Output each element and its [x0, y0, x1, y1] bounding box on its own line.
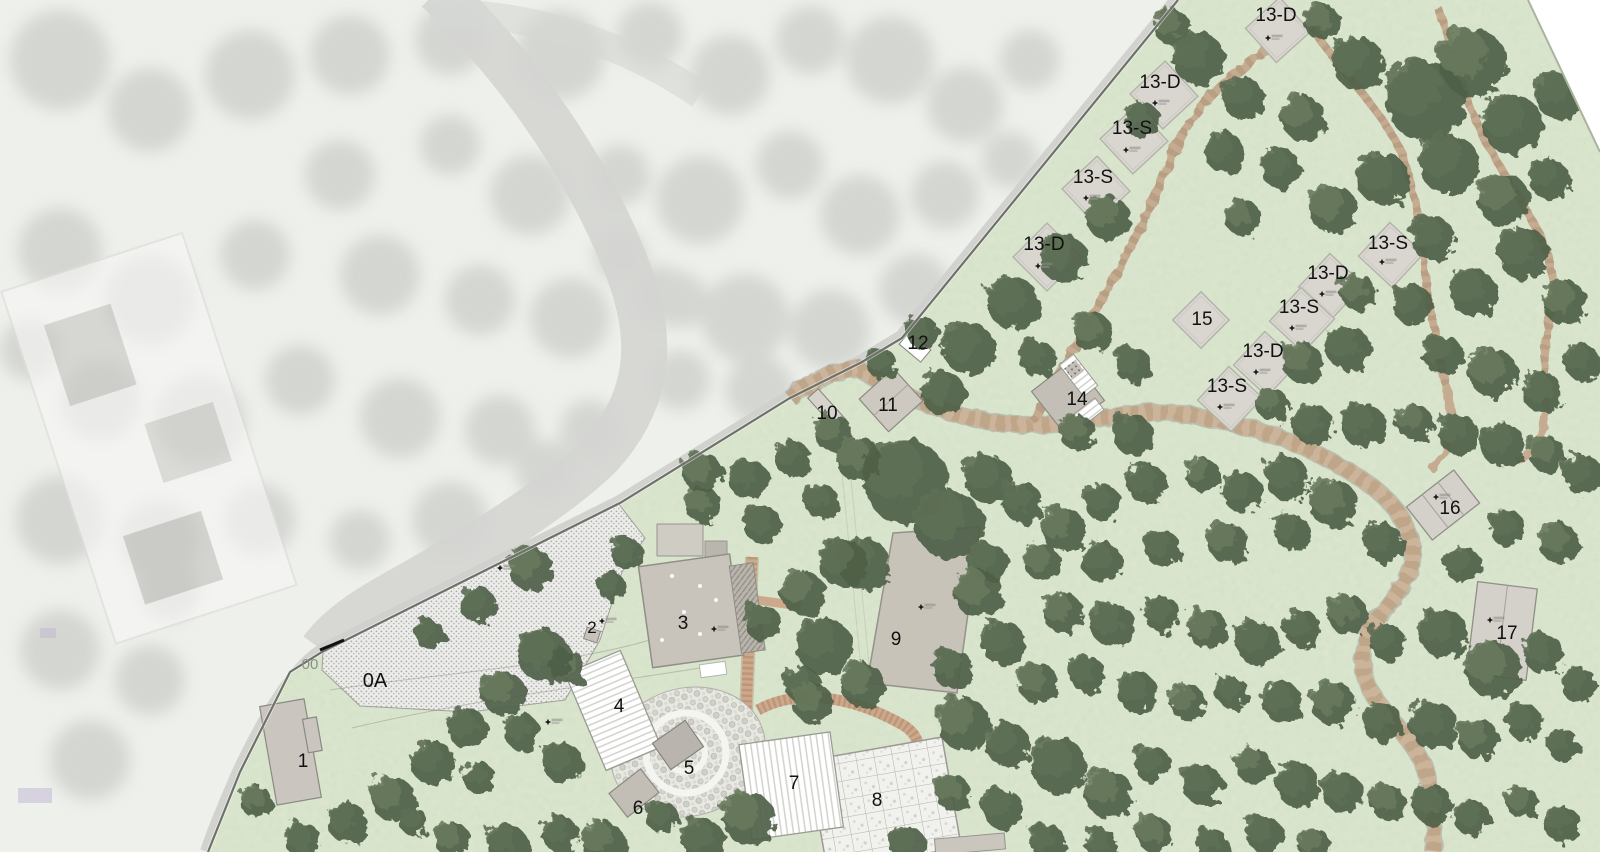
label-cabin-13d-e: 13-D	[1242, 341, 1283, 362]
photo-tree-blob	[656, 156, 744, 244]
photo-tree-blob	[846, 16, 934, 104]
photo-tree-blob	[776, 6, 844, 74]
label-cabin-13d-d: 13-D	[1307, 263, 1348, 284]
photo-tree-blob	[927, 67, 1003, 143]
photo-tree-blob	[20, 610, 100, 690]
photo-tree-blob	[10, 10, 110, 110]
label-bldg-8: 8	[872, 790, 883, 811]
label-cabin-13d-b: 13-D	[1139, 72, 1180, 93]
photo-tree-blob	[701, 274, 789, 362]
label-gate-00: 00	[302, 656, 319, 673]
photo-tree-blob	[50, 720, 130, 800]
site-plan-canvas: 13-D13-D13-S13-S13-D13-S13-D13-S1513-D13…	[0, 0, 1600, 852]
photo-tree-blob	[360, 378, 440, 458]
label-bldg-9: 9	[891, 629, 902, 650]
label-cabin-13s-c: 13-S	[1368, 233, 1408, 254]
photo-tree-blob	[911, 161, 979, 229]
label-bldg-10: 10	[816, 403, 837, 424]
photo-tree-blob	[420, 115, 480, 175]
label-bldg-7: 7	[789, 773, 800, 794]
photo-tree-blob	[310, 15, 390, 95]
photo-tree-blob	[1000, 30, 1060, 90]
photo-tree-blob	[690, 35, 770, 115]
photo-tree-blob	[265, 345, 335, 415]
label-area-0a: 0A	[363, 670, 388, 692]
photo-tree-blob	[115, 645, 185, 715]
label-cabin-13s-a: 13-S	[1112, 118, 1152, 139]
label-cabin-13s-b: 13-S	[1073, 167, 1113, 188]
photo-tree-blob	[330, 510, 390, 570]
label-lot-15: 15	[1191, 309, 1212, 330]
label-bldg-4: 4	[614, 696, 625, 717]
label-bldg-5: 5	[684, 758, 695, 779]
photo-tree-blob	[756, 131, 824, 199]
label-bldg-14: 14	[1066, 389, 1088, 410]
label-bldg-12: 12	[907, 333, 928, 354]
label-bldg-2: 2	[587, 618, 596, 637]
site-plan-stage: 13-D13-D13-S13-S13-D13-S13-D13-S1513-D13…	[0, 0, 1600, 852]
label-cabin-13s-d: 13-S	[1279, 297, 1319, 318]
photo-tree-blob	[340, 235, 420, 315]
label-bldg-11: 11	[878, 395, 898, 416]
label-bldg-3: 3	[678, 613, 689, 634]
photo-tree-blob	[108, 68, 192, 152]
label-bldg-16: 16	[1439, 498, 1460, 519]
photo-tree-blob	[305, 140, 375, 210]
label-cabin-13d-c: 13-D	[1023, 234, 1064, 255]
label-cabin-13s-e: 13-S	[1207, 376, 1247, 397]
label-bldg-17: 17	[1496, 623, 1517, 644]
photo-tree-blob	[530, 278, 610, 358]
photo-tree-blob	[820, 175, 900, 255]
photo-tree-blob	[220, 220, 290, 290]
label-bldg-1: 1	[298, 751, 309, 772]
label-bldg-6: 6	[633, 798, 644, 819]
label-cabin-13d-a: 13-D	[1255, 5, 1296, 26]
photo-tree-blob	[205, 30, 295, 120]
photo-tree-blob	[445, 265, 515, 335]
